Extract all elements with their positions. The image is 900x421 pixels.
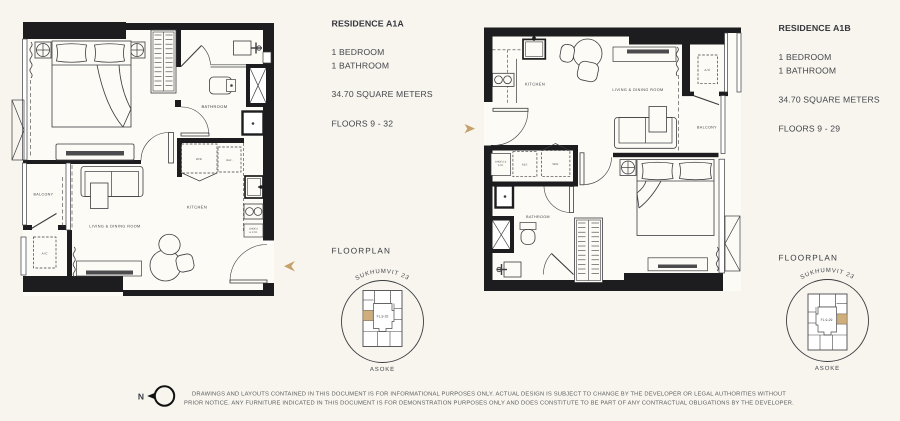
svg-text:BALCONY: BALCONY (697, 126, 717, 130)
svg-text:BATHROOM: BATHROOM (526, 215, 550, 219)
svg-text:SUKHUMVIT 23: SUKHUMVIT 23 (799, 267, 856, 281)
svg-text:W/D: W/D (196, 157, 202, 161)
svg-text:REF.: REF. (226, 159, 232, 162)
svg-text:A/C: A/C (704, 68, 711, 72)
svg-text:FLOORS 9 - 29: FLOORS 9 - 29 (779, 124, 841, 134)
svg-text:RESIDENCE A1B: RESIDENCE A1B (779, 23, 851, 33)
svg-text:1 BATHROOM: 1 BATHROOM (332, 61, 390, 71)
svg-text:KITCHEN: KITCHEN (187, 205, 207, 210)
svg-text:1 BEDROOM: 1 BEDROOM (332, 47, 385, 57)
svg-text:W/D: W/D (552, 162, 558, 166)
svg-text:& STO.: & STO. (249, 231, 258, 234)
svg-text:ASOKE: ASOKE (815, 365, 840, 372)
svg-text:RESIDENCE A1A: RESIDENCE A1A (332, 19, 405, 29)
svg-text:PRIOR NOTICE. ANY FURNITURE IN: PRIOR NOTICE. ANY FURNITURE INDICATED IN… (184, 400, 794, 407)
svg-text:LIVING & DINING ROOM: LIVING & DINING ROOM (89, 225, 140, 229)
svg-text:FL.9-29: FL.9-29 (821, 318, 833, 322)
svg-text:FLOORPLAN: FLOORPLAN (332, 247, 392, 256)
svg-text:SUKHUMVIT 23: SUKHUMVIT 23 (354, 268, 411, 282)
svg-text:STO.: STO. (498, 164, 504, 167)
svg-text:FLOORPLAN: FLOORPLAN (779, 254, 839, 263)
svg-text:A/C: A/C (42, 252, 49, 256)
svg-text:1 BEDROOM: 1 BEDROOM (779, 52, 832, 62)
svg-text:34.70 SQUARE METERS: 34.70 SQUARE METERS (332, 89, 433, 99)
svg-text:ASOKE: ASOKE (370, 366, 395, 373)
svg-text:34.70 SQUARE METERS: 34.70 SQUARE METERS (779, 95, 880, 105)
svg-text:FL.9-32: FL.9-32 (377, 315, 389, 319)
svg-text:KITCHEN: KITCHEN (525, 82, 545, 87)
svg-text:DRAWINGS AND LAYOUTS CONTAINED: DRAWINGS AND LAYOUTS CONTAINED IN THIS D… (192, 391, 786, 398)
svg-text:LIVING & DINING ROOM: LIVING & DINING ROOM (612, 88, 663, 92)
svg-text:N: N (138, 392, 144, 402)
svg-text:1 BATHROOM: 1 BATHROOM (779, 66, 837, 76)
svg-text:FLOORS 9 - 32: FLOORS 9 - 32 (332, 119, 394, 129)
svg-text:BALCONY: BALCONY (34, 193, 54, 197)
svg-text:BATHROOM: BATHROOM (201, 104, 227, 109)
svg-text:REF.: REF. (522, 164, 528, 167)
